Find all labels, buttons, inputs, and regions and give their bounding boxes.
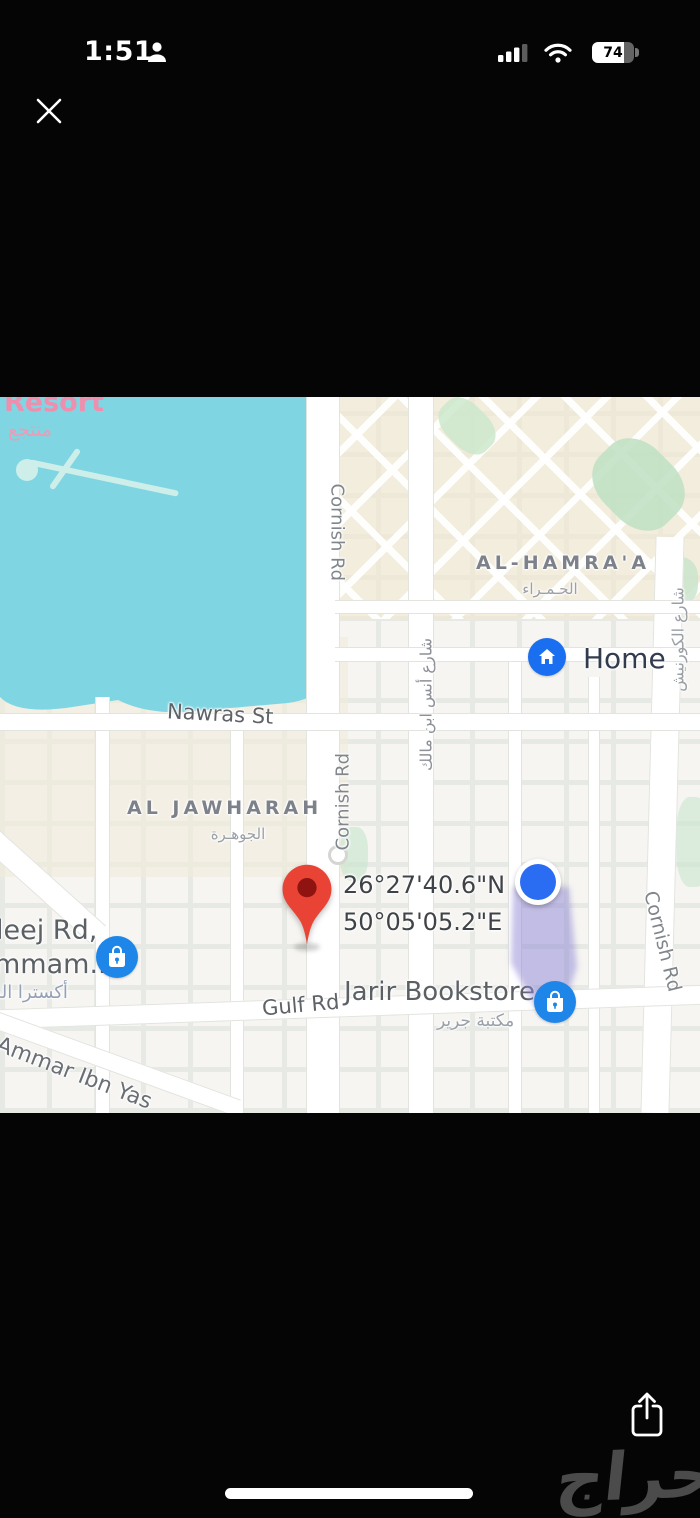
close-button[interactable]	[32, 94, 66, 128]
jarir-bookstore-label-arabic: مكتبة جرير	[437, 1011, 514, 1031]
al-jawharah-area-label: AL JAWHARAH	[127, 797, 322, 819]
haraj-watermark: حراج	[553, 1435, 700, 1517]
battery-nub	[635, 48, 639, 57]
cell-signal-icon	[498, 42, 530, 64]
share-button[interactable]	[624, 1392, 670, 1440]
al-hamraa-area-label: AL-HAMRA'A	[476, 552, 650, 574]
khaleej-rd-label-truncated: leej Rd,	[0, 915, 97, 946]
store-poi-icon	[96, 936, 138, 978]
al-jawharah-area-label-arabic: الجوهـرة	[196, 825, 280, 843]
bookstore-poi-icon	[534, 981, 576, 1023]
home-poi-icon	[528, 638, 566, 676]
status-bar: 1:51 74	[0, 0, 700, 80]
road	[588, 677, 600, 1113]
person-icon	[146, 40, 168, 64]
road-nawras	[0, 713, 700, 731]
pin-longitude: 50°05'05.2"E	[343, 904, 505, 941]
battery-percent: 74	[592, 42, 634, 63]
extra-dammam-label-arabic: أكسترا الدمام	[0, 982, 68, 1003]
pin-coordinates: 26°27'40.6"N 50°05'05.2"E	[343, 867, 505, 941]
current-location-dot	[515, 859, 561, 905]
phone-screen: 1:51 74	[0, 0, 700, 1518]
pier	[16, 459, 38, 481]
home-indicator[interactable]	[225, 1488, 473, 1499]
road	[230, 727, 244, 1113]
shopping-bag-icon	[544, 990, 566, 1014]
house-icon	[537, 647, 557, 667]
shopping-bag-icon	[106, 945, 128, 969]
al-hamraa-area-label-arabic: الحـمـراء	[500, 580, 600, 598]
wifi-icon	[543, 42, 573, 64]
cornish-rd-label: Cornish Rd	[327, 484, 348, 578]
resort-label-arabic: منتجع	[8, 419, 52, 441]
road	[335, 600, 700, 614]
current-location-dot-inner	[520, 864, 556, 900]
dropped-pin-icon	[281, 863, 333, 949]
cornish-rd-label: Cornish Rd	[333, 757, 354, 851]
home-poi-label: Home	[583, 642, 666, 675]
map-canvas[interactable]: Resort منتجع Cornish Rd Cornish Rd Corni…	[0, 397, 700, 1113]
pin-latitude: 26°27'40.6"N	[343, 867, 505, 904]
resort-label: Resort	[4, 397, 104, 418]
anas-ibn-malik-street-label: شارع أنس ابن مالك	[417, 619, 436, 791]
cornish-street-label-arabic: شارع الكورنيش	[669, 578, 688, 702]
clock: 1:51	[84, 36, 153, 67]
battery-icon: 74	[592, 42, 634, 63]
